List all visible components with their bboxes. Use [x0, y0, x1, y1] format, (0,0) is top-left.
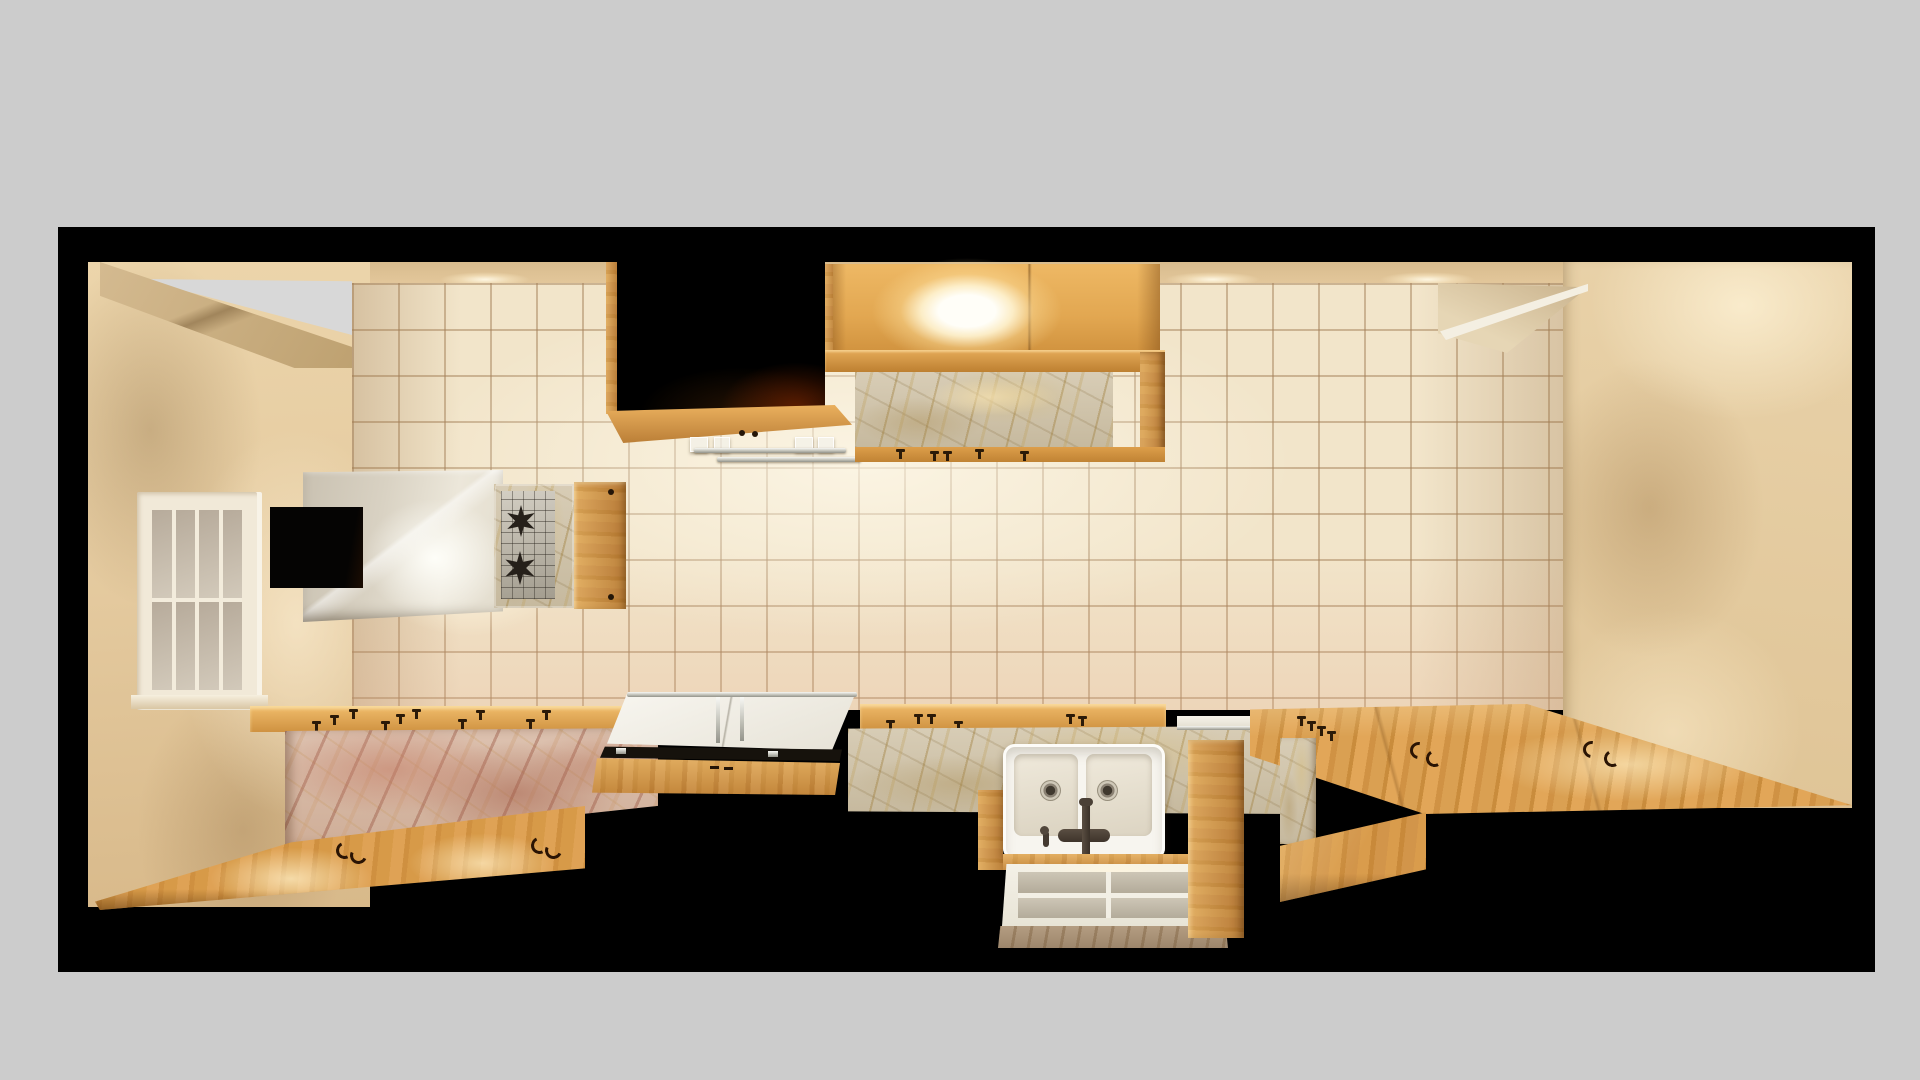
dark-recess: [617, 250, 825, 413]
counter-pin: [1297, 716, 1306, 719]
sink-drain: [1097, 780, 1118, 801]
sink-side-column: [1188, 740, 1244, 938]
counter-pin: [1317, 726, 1326, 729]
tray-pane: [1111, 872, 1199, 893]
tray-pane: [1018, 872, 1106, 893]
right-wall: [1563, 262, 1852, 808]
counter-pin: [1307, 721, 1316, 724]
counter-pin: [1327, 731, 1336, 734]
counter-pin: [1066, 714, 1075, 717]
window-glass: [152, 510, 242, 690]
rack-rail-lower: [717, 457, 861, 462]
counter-pin: [476, 710, 485, 713]
counter-pin: [927, 714, 936, 717]
island-rail-post: [740, 697, 744, 741]
island-top: [607, 692, 857, 752]
sink-counter-edge: [860, 704, 1166, 730]
faucet-spout-tip: [1079, 798, 1093, 806]
counter-pin: [312, 721, 321, 724]
rail-pull: [930, 451, 939, 454]
window-sill: [131, 695, 268, 709]
counter-pin: [381, 721, 390, 724]
sink-basin-right: [1086, 754, 1152, 836]
window-pane: [176, 602, 196, 690]
backsplash-glow: [900, 372, 1080, 422]
rail-pull: [943, 451, 952, 454]
sink-drain: [1040, 780, 1061, 801]
counter-pin: [412, 709, 421, 712]
rail-pull: [1020, 451, 1029, 454]
hood-side-opening: [270, 507, 363, 588]
upper-cabinet-glow: [872, 258, 1062, 364]
island-handle: [724, 767, 733, 770]
tray-panels: [1018, 872, 1198, 918]
counter-pin: [458, 719, 467, 722]
island-bracket: [616, 748, 626, 754]
cooktop: [501, 491, 555, 599]
rack-clip: [752, 431, 758, 437]
upper-cabinet-bottom-rail: [825, 350, 1165, 372]
tray-pane: [1018, 898, 1106, 919]
counter-pin: [954, 721, 963, 724]
left-counter-edge: [250, 706, 658, 732]
window-pane: [223, 510, 243, 598]
window-pane: [199, 510, 219, 598]
stove-cabinet-door: [574, 482, 626, 609]
counter-pin: [526, 719, 535, 722]
counter-pin: [542, 710, 551, 713]
counter-pin: [349, 709, 358, 712]
window-pane: [176, 510, 196, 598]
counter-pin: [914, 714, 923, 717]
window-pane: [152, 602, 172, 690]
window-pane: [152, 510, 172, 598]
rail-pull: [896, 449, 905, 452]
window-pane: [199, 602, 219, 690]
rack-clip: [739, 430, 745, 436]
upper-cabinet-side-right: [1140, 352, 1165, 460]
kitchen-render: [0, 0, 1920, 1080]
faucet-lever-ball: [1040, 826, 1049, 835]
island-rail-post: [716, 697, 720, 743]
counter-pin: [396, 714, 405, 717]
rack-rail: [694, 448, 846, 453]
window-pane: [223, 602, 243, 690]
sink-left-post: [978, 790, 1003, 870]
counter-pin: [330, 715, 339, 718]
island-handle: [710, 766, 719, 769]
counter-pin: [1078, 716, 1087, 719]
rail-pull: [975, 449, 984, 452]
door-knob: [608, 489, 614, 495]
island-bracket: [768, 751, 778, 757]
right-marble-block: [1280, 738, 1316, 844]
door-knob: [608, 594, 614, 600]
tray-pane: [1111, 898, 1199, 919]
counter-pin: [886, 720, 895, 723]
